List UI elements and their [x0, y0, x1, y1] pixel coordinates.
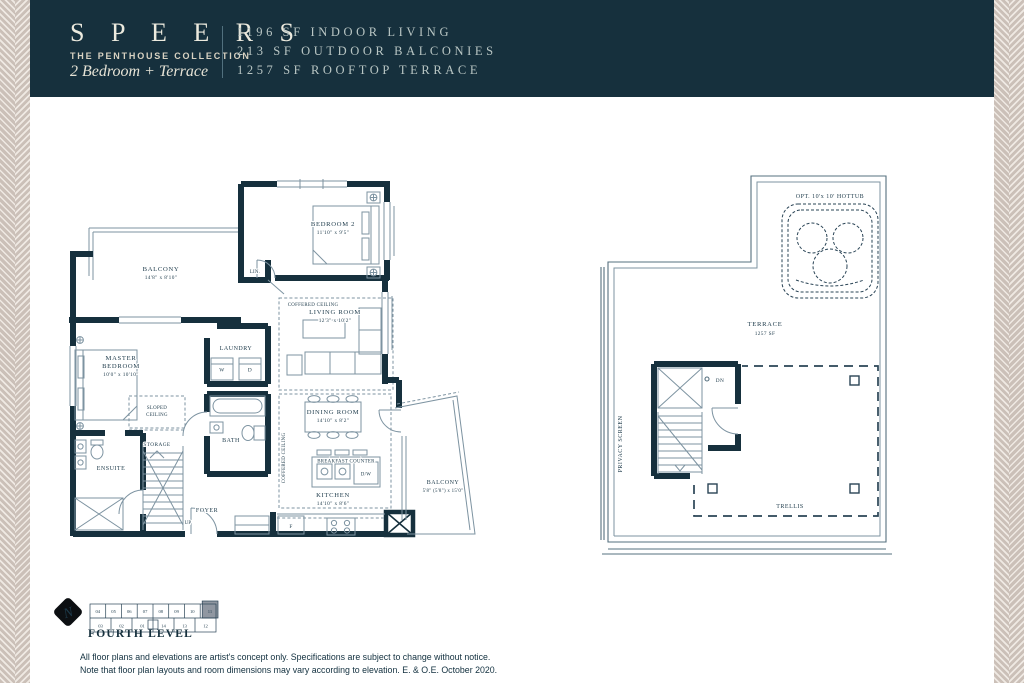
svg-text:04: 04	[96, 609, 101, 614]
svg-text:08: 08	[159, 609, 164, 614]
kitchen-label: KITCHEN	[316, 492, 350, 499]
master-label-1: MASTER	[106, 355, 137, 362]
balcony-top-label: BALCONY	[143, 266, 180, 273]
disclaimer-line-1: All floor plans and elevations are artis…	[80, 651, 497, 664]
terrace-label: TERRACE	[748, 321, 783, 328]
north-arrow-icon: N	[50, 594, 86, 630]
sloped-label-1: SLOPED	[147, 406, 167, 411]
pattern-border-left	[0, 0, 30, 683]
privacy-screen-label: PRIVACY SCREEN	[618, 415, 624, 472]
bath-label: BATH	[222, 438, 240, 444]
coffered-kitchen-label: COFFERED CEILING	[282, 433, 287, 484]
foyer-label: FOYER	[196, 508, 218, 514]
balcony-top-dims: 14'8" x 8'10"	[145, 275, 178, 281]
svg-text:07: 07	[143, 609, 148, 614]
header-band: S P E E R S THE PENTHOUSE COLLECTION 2 B…	[30, 0, 994, 97]
master-bed	[75, 337, 137, 430]
balcony-right-dims: 5'8" (5'8") x 15'0"	[423, 489, 464, 494]
living-dims: 12'3" x 10'2"	[319, 318, 352, 324]
sloped-label-2: CEILING	[146, 413, 168, 418]
ensuite-fixtures	[75, 440, 123, 530]
stat-indoor: 1196 SF INDOOR LIVING	[237, 23, 497, 42]
laundry-label: LAUNDRY	[220, 346, 253, 352]
kitchen-dims: 14'10" x 8'6"	[317, 501, 350, 507]
privacy-screen-lines	[601, 267, 604, 540]
master-label-2: BEDROOM	[102, 363, 140, 370]
pattern-border-right	[994, 0, 1024, 683]
svg-text:05: 05	[111, 609, 116, 614]
header-divider	[222, 26, 223, 78]
svg-text:11: 11	[208, 609, 213, 614]
level-label: FOURTH LEVEL	[88, 628, 223, 640]
dryer-label: D	[248, 368, 252, 374]
terrace-floor-plan: OPT. 10'x 10' HOTTUB TERRACE 1257 SF PRI…	[590, 172, 910, 557]
ensuite-label: ENSUITE	[97, 466, 126, 472]
terrace-stairs	[648, 359, 742, 481]
foyer-stairs	[143, 446, 183, 530]
svg-text:10: 10	[190, 609, 195, 614]
dn-label: DN	[716, 378, 724, 384]
dining-dims: 14'10" x 8'2"	[317, 418, 350, 424]
area-stats: 1196 SF INDOOR LIVING 213 SF OUTDOOR BAL…	[237, 23, 497, 80]
column-x	[386, 512, 413, 535]
trellis-label: TRELLIS	[776, 504, 804, 510]
suite-floor-plan: BEDROOM 2 11'10" x 9'5" BALCONY 14'8" x …	[55, 168, 485, 560]
stat-terrace: 1257 SF ROOFTOP TERRACE	[237, 61, 497, 80]
coffered-living-label: COFFERED CEILING	[288, 303, 339, 308]
dishwasher-label: D/W	[361, 473, 371, 478]
svg-text:09: 09	[174, 609, 179, 614]
linen-label: LIN.	[250, 270, 261, 275]
svg-text:06: 06	[127, 609, 132, 614]
master-dims: 10'0" x 10'10"	[103, 372, 139, 378]
bath-fixtures	[210, 396, 265, 441]
dining-furniture	[305, 396, 361, 439]
hottub-label: OPT. 10'x 10' HOTTUB	[796, 194, 864, 200]
up-label: UP	[185, 521, 192, 526]
bedroom2-dims: 11'10" x 9'5"	[317, 230, 349, 236]
breakfast-counter-label: BREAKFAST COUNTER	[317, 460, 375, 465]
stat-balconies: 213 SF OUTDOOR BALCONIES	[237, 42, 497, 61]
hottub-drawing	[782, 204, 878, 298]
terrace-outline	[602, 176, 892, 554]
terrace-area: 1257 SF	[755, 331, 776, 337]
balcony-right-label: BALCONY	[427, 480, 460, 486]
disclaimer: All floor plans and elevations are artis…	[80, 651, 497, 676]
storage-label: STORAGE	[143, 442, 170, 448]
dining-label: DINING ROOM	[307, 409, 360, 416]
disclaimer-line-2: Note that floor plan layouts and room di…	[80, 664, 497, 677]
living-label: LIVING ROOM	[309, 309, 361, 316]
floorplan-page: S P E E R S THE PENTHOUSE COLLECTION 2 B…	[0, 0, 1024, 683]
bedroom2-label: BEDROOM 2	[311, 221, 355, 228]
fridge-label: F	[289, 524, 292, 530]
washer-label: W	[219, 368, 224, 374]
